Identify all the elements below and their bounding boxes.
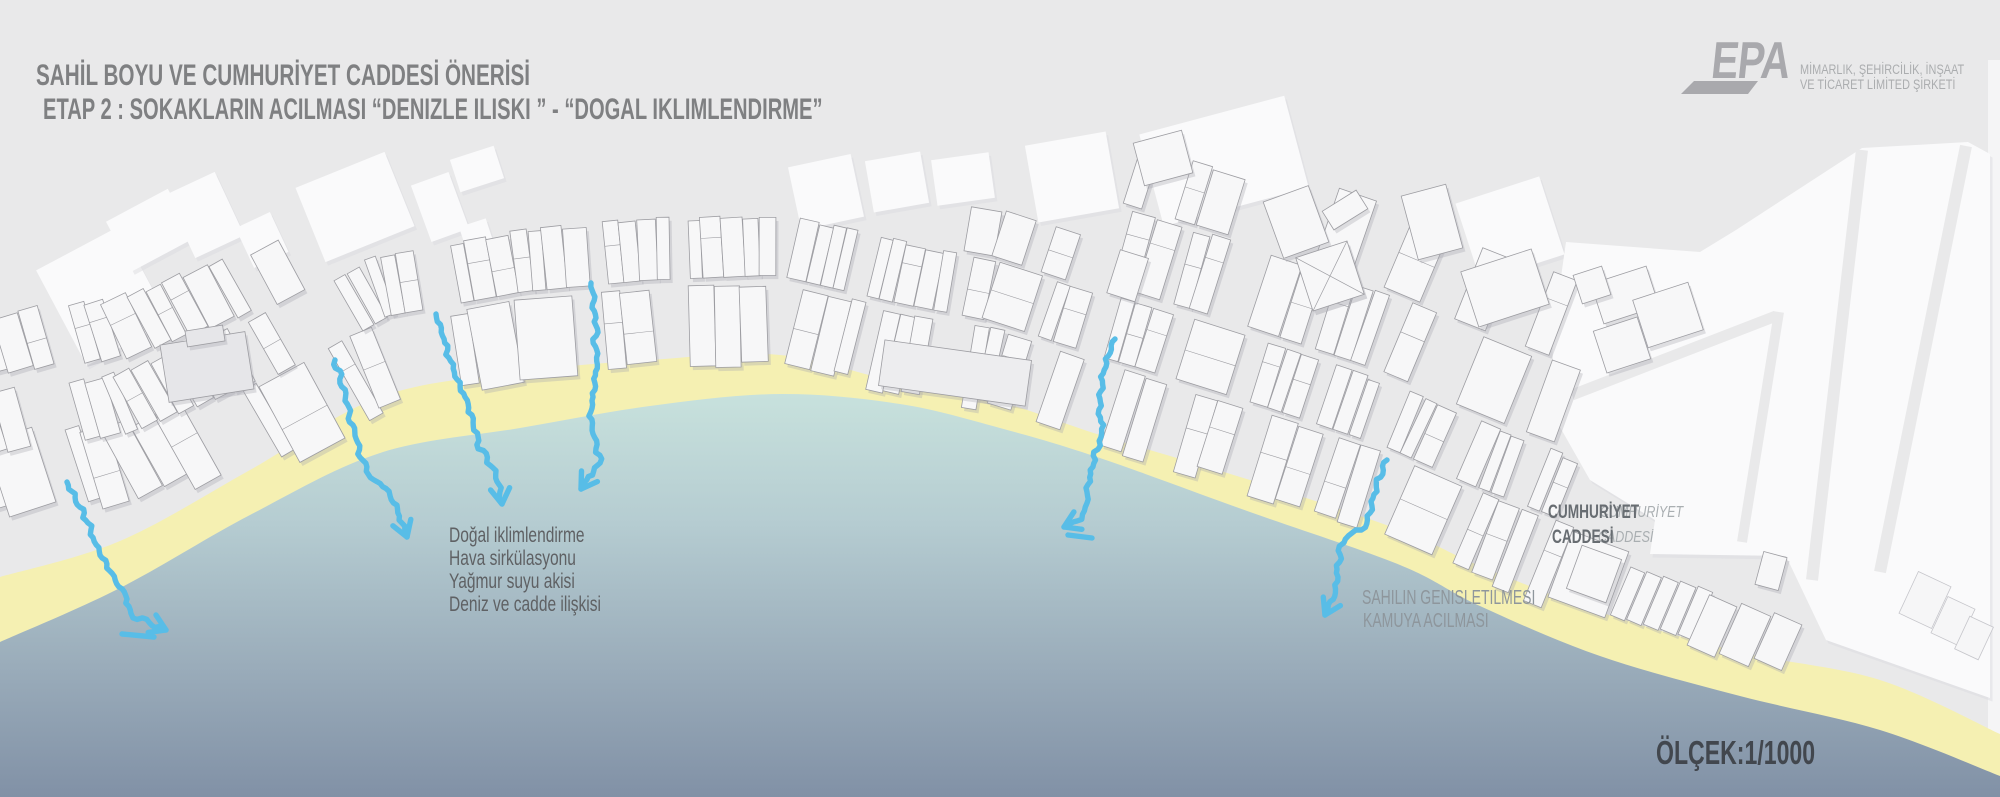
svg-text:EPA: EPA <box>1709 31 1793 89</box>
svg-text:Deniz ve cadde ilişkisi: Deniz ve cadde ilişkisi <box>449 592 601 616</box>
svg-text:SAHİL BOYU VE CUMHURİYET CADDE: SAHİL BOYU VE CUMHURİYET CADDESİ ÖNERİSİ <box>36 58 530 92</box>
svg-text:MİMARLIK, ŞEHİRCİLİK, İNŞAAT: MİMARLIK, ŞEHİRCİLİK, İNŞAAT <box>1800 62 1964 78</box>
svg-text:SAHILIN GENISLETILMESI: SAHILIN GENISLETILMESI <box>1362 585 1535 608</box>
svg-text:Doğal iklimlendirme: Doğal iklimlendirme <box>449 523 585 547</box>
svg-text:Yağmur suyu akisi: Yağmur suyu akisi <box>449 569 575 593</box>
svg-text:KAMUYA ACILMASI: KAMUYA ACILMASI <box>1363 608 1489 631</box>
svg-text:VE TİCARET LİMİTED ŞİRKETİ: VE TİCARET LİMİTED ŞİRKETİ <box>1800 77 1955 93</box>
svg-text:CADDESİ: CADDESİ <box>1552 526 1614 548</box>
svg-text:ETAP 2 : SOKAKLARIN ACILMASI: ETAP 2 : SOKAKLARIN ACILMASI “DENIZLE IL… <box>43 93 823 126</box>
svg-text:CUMHURİYET: CUMHURİYET <box>1548 501 1639 523</box>
svg-text:Hava sirkülasyonu: Hava sirkülasyonu <box>449 546 576 570</box>
svg-text:ÖLÇEK:1/1000: ÖLÇEK:1/1000 <box>1656 735 1815 772</box>
